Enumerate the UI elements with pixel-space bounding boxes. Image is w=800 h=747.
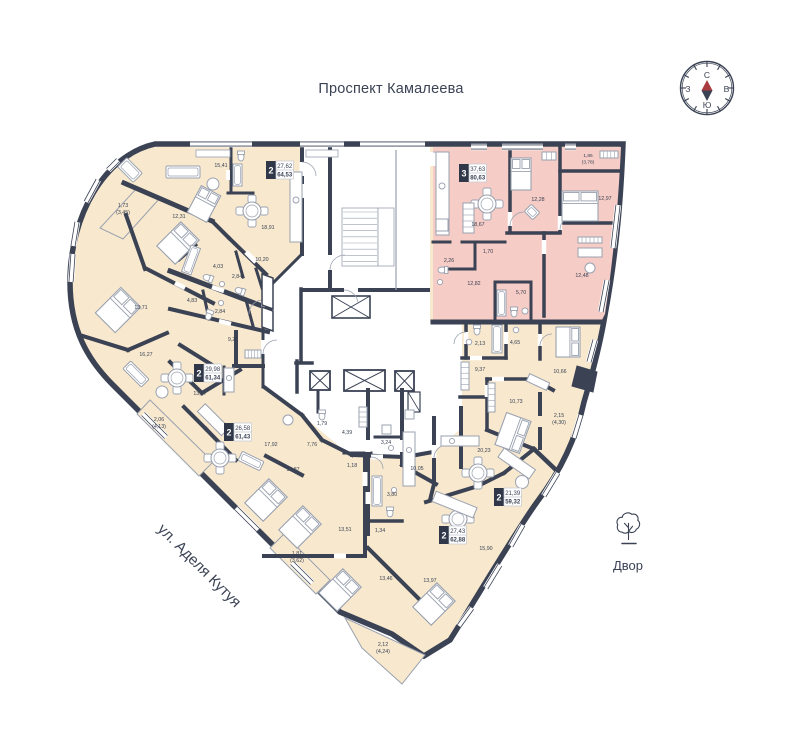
svg-text:5,70: 5,70 bbox=[516, 290, 526, 296]
svg-text:2,12: 2,12 bbox=[378, 642, 388, 648]
svg-text:13,97: 13,97 bbox=[193, 391, 206, 397]
svg-text:(3,78): (3,78) bbox=[582, 160, 595, 166]
svg-text:13,97: 13,97 bbox=[423, 578, 436, 584]
svg-text:59,32: 59,32 bbox=[505, 500, 521, 506]
svg-text:29,98: 29,98 bbox=[205, 367, 221, 373]
svg-text:1,85: 1,85 bbox=[583, 153, 593, 159]
svg-text:9,37: 9,37 bbox=[475, 367, 485, 373]
svg-text:37,63: 37,63 bbox=[470, 167, 486, 173]
svg-text:(3,45): (3,45) bbox=[116, 210, 130, 216]
svg-text:20,23: 20,23 bbox=[477, 448, 490, 454]
svg-text:7,76: 7,76 bbox=[307, 442, 317, 448]
svg-text:1,79: 1,79 bbox=[317, 421, 327, 427]
svg-text:10,05: 10,05 bbox=[410, 466, 423, 472]
svg-text:2: 2 bbox=[496, 493, 501, 503]
svg-text:27,62: 27,62 bbox=[277, 164, 293, 170]
svg-text:3,80: 3,80 bbox=[387, 492, 397, 498]
svg-text:26,58: 26,58 bbox=[235, 426, 251, 432]
svg-text:1,34: 1,34 bbox=[375, 528, 385, 534]
svg-text:12,82: 12,82 bbox=[467, 281, 480, 287]
svg-text:2: 2 bbox=[441, 531, 446, 541]
svg-text:Ю: Ю bbox=[703, 100, 712, 110]
svg-text:18,91: 18,91 bbox=[261, 225, 274, 231]
svg-text:3: 3 bbox=[461, 169, 466, 179]
svg-text:61,34: 61,34 bbox=[205, 376, 221, 382]
svg-text:13,46: 13,46 bbox=[379, 576, 392, 582]
svg-text:(4,30): (4,30) bbox=[552, 420, 566, 426]
svg-text:12,31: 12,31 bbox=[172, 214, 185, 220]
svg-text:27,43: 27,43 bbox=[450, 529, 466, 535]
svg-text:1,81: 1,81 bbox=[292, 551, 302, 557]
svg-text:1,73: 1,73 bbox=[118, 203, 128, 209]
svg-text:(3,62): (3,62) bbox=[290, 558, 304, 564]
svg-text:2: 2 bbox=[226, 428, 231, 438]
svg-text:13,71: 13,71 bbox=[134, 305, 147, 311]
svg-text:2: 2 bbox=[196, 369, 201, 379]
svg-text:12,48: 12,48 bbox=[575, 273, 588, 279]
svg-text:4,65: 4,65 bbox=[510, 340, 520, 346]
svg-text:1,18: 1,18 bbox=[347, 463, 357, 469]
svg-text:2,84: 2,84 bbox=[232, 274, 242, 280]
svg-text:1,70: 1,70 bbox=[483, 249, 493, 255]
svg-text:(4,24): (4,24) bbox=[376, 649, 390, 655]
svg-text:13,51: 13,51 bbox=[338, 527, 351, 533]
svg-text:80,63: 80,63 bbox=[470, 176, 486, 182]
svg-text:12,28: 12,28 bbox=[531, 197, 544, 203]
svg-text:18,67: 18,67 bbox=[471, 222, 484, 228]
svg-text:62,88: 62,88 bbox=[450, 538, 466, 544]
svg-text:16,27: 16,27 bbox=[139, 352, 152, 358]
svg-text:13,87: 13,87 bbox=[286, 467, 299, 473]
svg-text:2,06: 2,06 bbox=[154, 417, 164, 423]
svg-text:2: 2 bbox=[268, 166, 273, 176]
svg-text:2,84: 2,84 bbox=[215, 309, 225, 315]
svg-text:В: В bbox=[724, 84, 730, 94]
svg-text:4,03: 4,03 bbox=[213, 264, 223, 270]
svg-text:Проспект Камалеева: Проспект Камалеева bbox=[318, 81, 464, 97]
svg-text:3,24: 3,24 bbox=[381, 440, 391, 446]
svg-text:61,43: 61,43 bbox=[235, 435, 251, 441]
svg-text:2,13: 2,13 bbox=[475, 341, 485, 347]
svg-text:(4,13): (4,13) bbox=[152, 424, 166, 430]
svg-text:4,83: 4,83 bbox=[187, 298, 197, 304]
svg-text:9,26: 9,26 bbox=[228, 337, 238, 343]
svg-text:10,20: 10,20 bbox=[255, 257, 268, 263]
svg-text:10,73: 10,73 bbox=[509, 399, 522, 405]
svg-text:17,92: 17,92 bbox=[264, 442, 277, 448]
svg-text:Двор: Двор bbox=[613, 558, 643, 573]
svg-text:4,39: 4,39 bbox=[342, 430, 352, 436]
svg-text:64,53: 64,53 bbox=[277, 173, 293, 179]
svg-text:12,97: 12,97 bbox=[598, 196, 611, 202]
svg-text:2,26: 2,26 bbox=[444, 258, 454, 264]
svg-text:21,39: 21,39 bbox=[505, 491, 521, 497]
svg-text:15,90: 15,90 bbox=[479, 546, 492, 552]
svg-text:З: З bbox=[685, 84, 690, 94]
svg-text:10,66: 10,66 bbox=[553, 369, 566, 375]
svg-text:С: С bbox=[704, 70, 710, 80]
svg-text:15,41: 15,41 bbox=[214, 163, 227, 169]
svg-text:2,15: 2,15 bbox=[554, 413, 564, 419]
